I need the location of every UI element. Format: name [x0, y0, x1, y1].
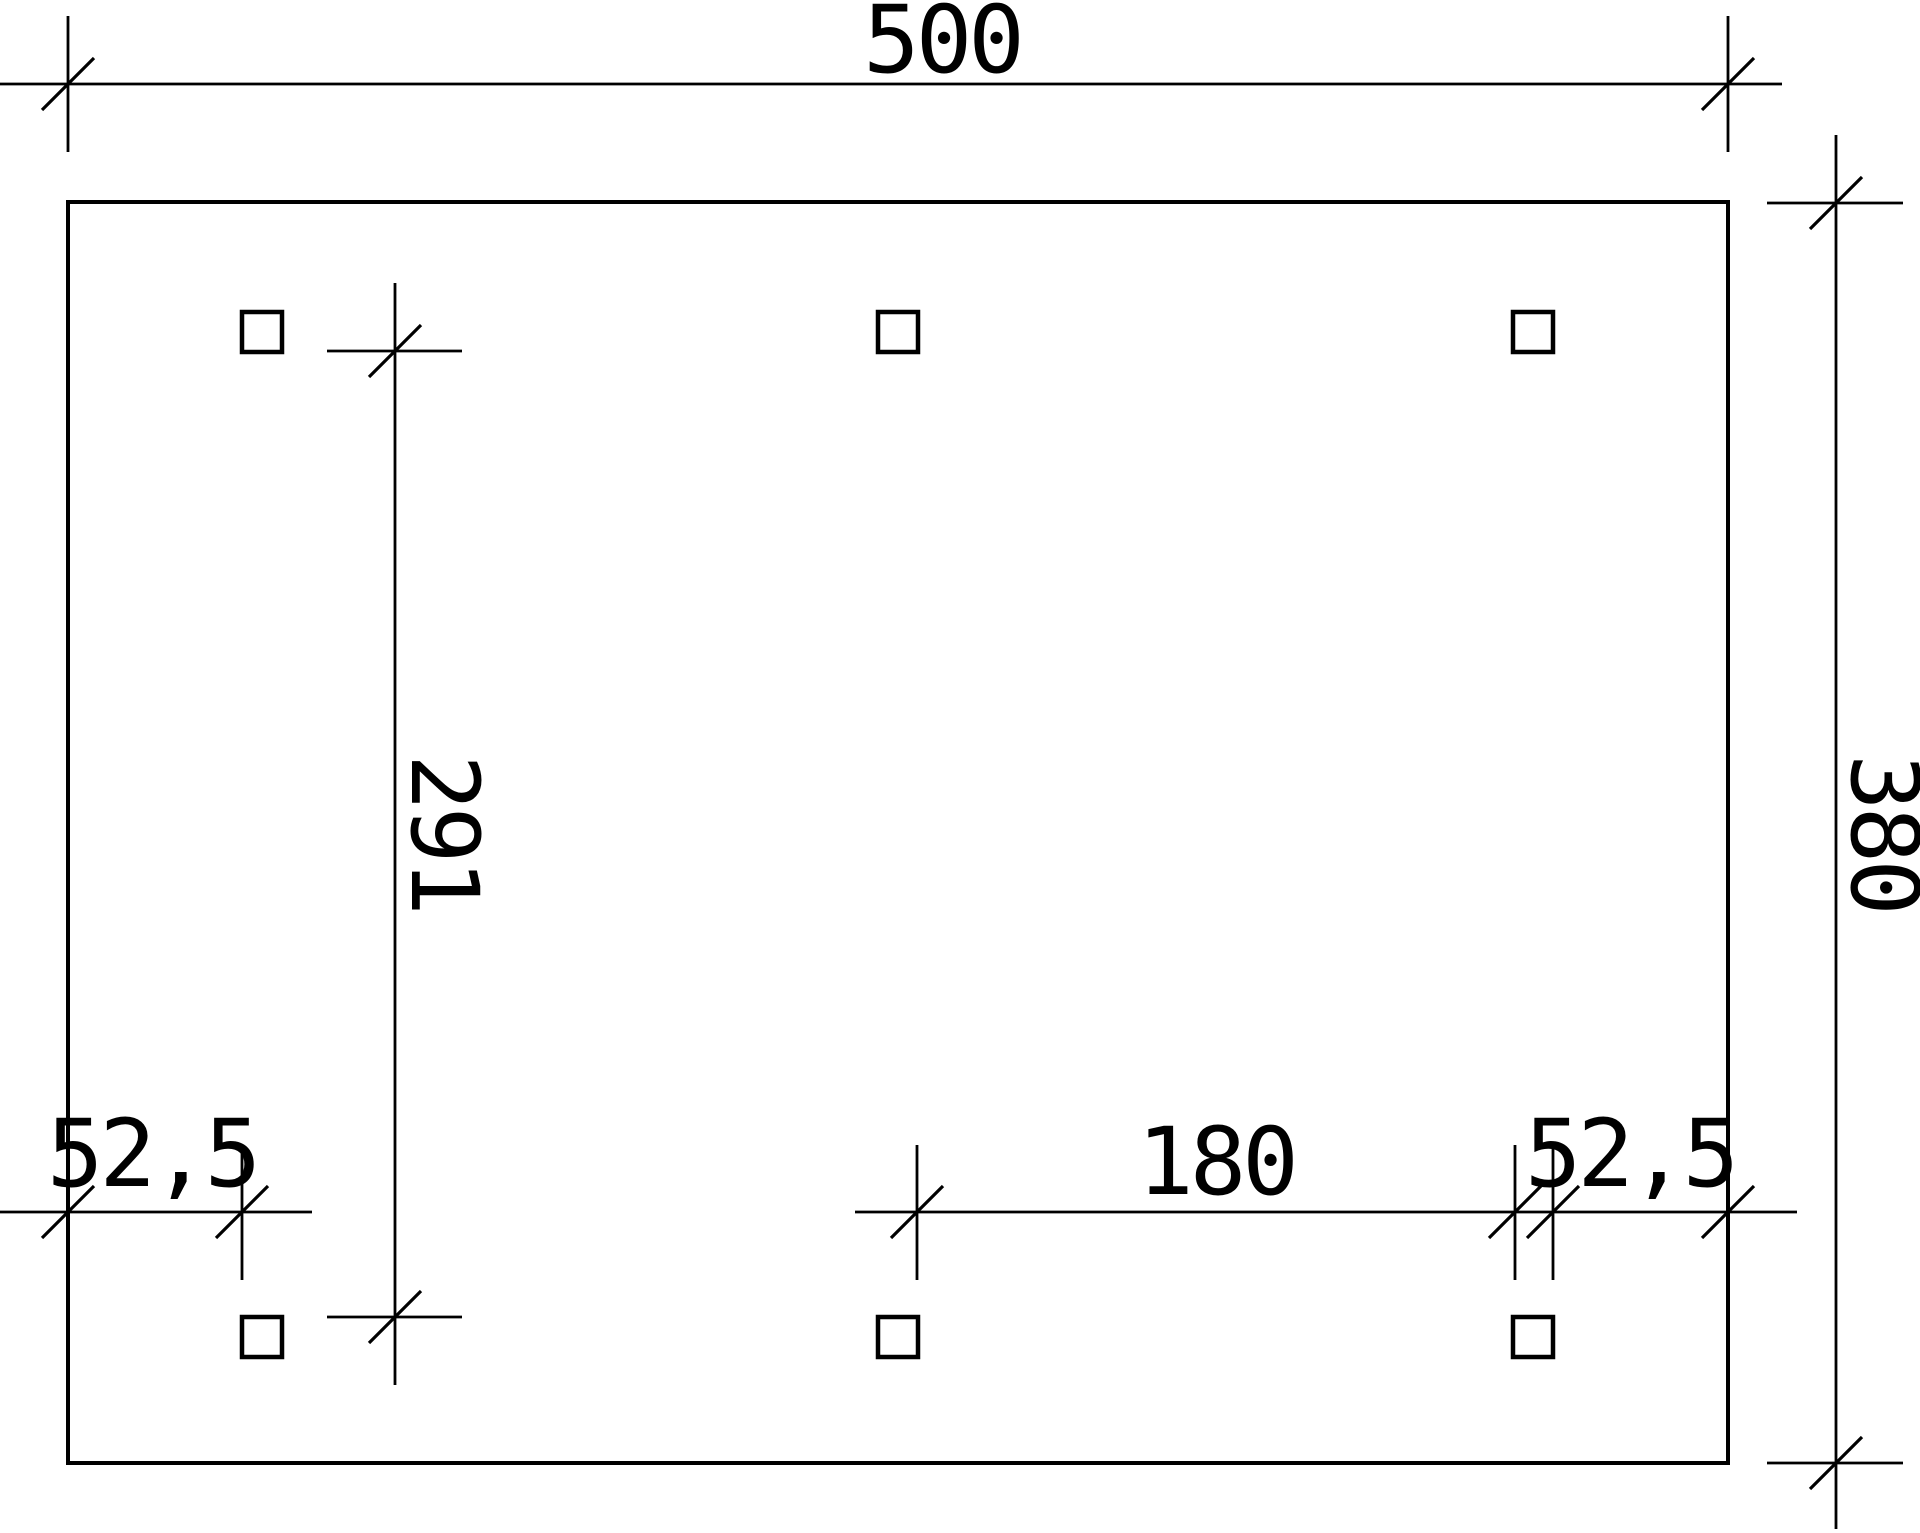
post-row-bottom [242, 1317, 1553, 1357]
dimension-right-edge-offset: 52,5 [1525, 1100, 1754, 1280]
dimension-label-post-spacing: 180 [1137, 1108, 1295, 1217]
post-marker [878, 1317, 918, 1357]
post-marker [878, 312, 918, 352]
post-marker [242, 312, 282, 352]
dimension-label-overall-depth: 380 [1829, 754, 1920, 912]
post-marker [242, 1317, 282, 1357]
dimension-overall-width: 500 [0, 0, 1782, 152]
dimension-post-clear-span: 291 [327, 283, 498, 1385]
dimension-label-overall-width: 500 [863, 0, 1021, 95]
dimension-overall-depth: 380 [1767, 135, 1920, 1529]
dimension-label-right-edge-offset: 52,5 [1525, 1100, 1735, 1209]
drawing-canvas: 500 380 291 52,5 [0, 0, 1920, 1533]
dimension-drawing: 500 380 291 52,5 [0, 0, 1920, 1533]
post-marker [1513, 312, 1553, 352]
dimension-label-post-clear-span: 291 [389, 754, 498, 912]
dimension-label-left-edge-offset: 52,5 [47, 1100, 257, 1209]
plan-outline [68, 202, 1728, 1463]
post-row-top [242, 312, 1553, 352]
post-marker [1513, 1317, 1553, 1357]
dimension-left-edge-offset: 52,5 [0, 1100, 312, 1280]
